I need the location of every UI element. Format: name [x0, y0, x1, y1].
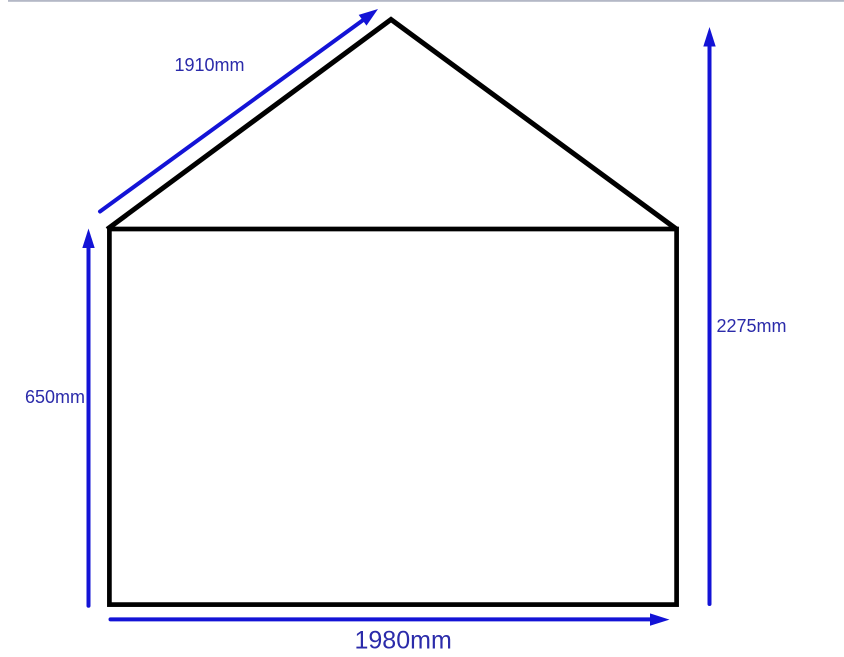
svg-text:2275mm: 2275mm	[717, 316, 787, 336]
svg-text:1980mm: 1980mm	[355, 627, 452, 655]
svg-text:650mm: 650mm	[25, 387, 85, 407]
svg-text:1910mm: 1910mm	[175, 55, 245, 75]
